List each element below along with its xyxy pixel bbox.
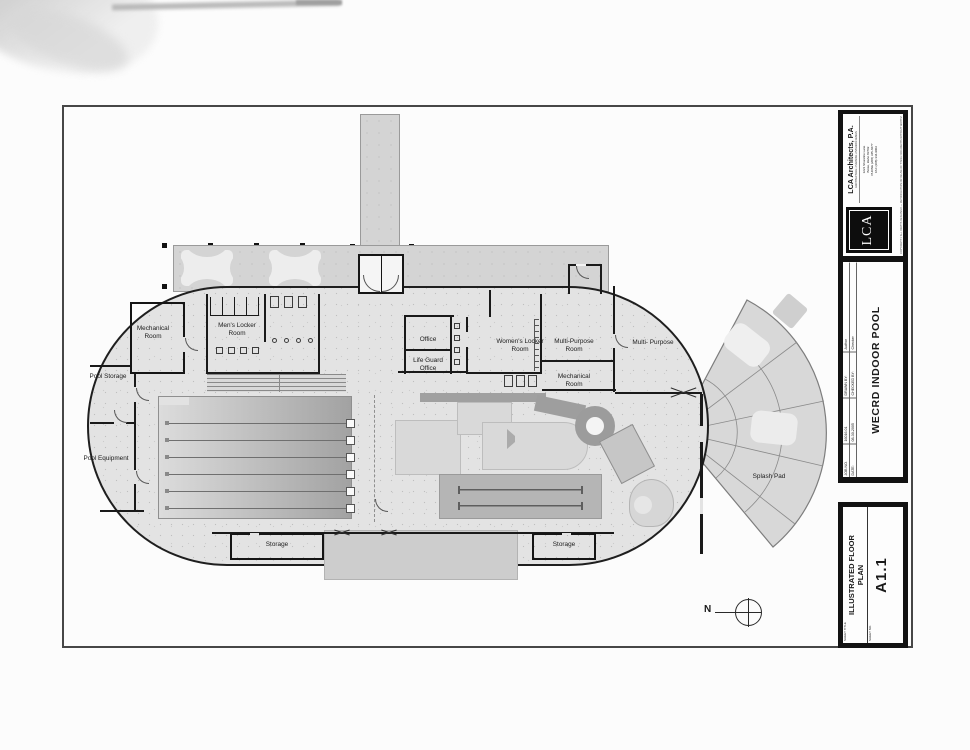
room-label-pool-storage: Pool Storage (80, 373, 136, 381)
double-door-symbol (670, 386, 697, 398)
room-label-pool-equipment: Pool Equipment (76, 455, 136, 463)
kiddie-slide (629, 479, 674, 527)
sheet-number: A1.1 (873, 507, 890, 643)
titleblock-upper: LCA LCA Architects, P.A. ARCHITECTURE • … (838, 110, 908, 483)
scan-mark-top (296, 0, 342, 5)
door-x-symbol (381, 527, 397, 537)
drawing-border: Mechanical Room Pool Storage Pool Equipm… (62, 105, 913, 648)
shade-sail-2 (269, 250, 321, 286)
room-label-mens-locker: Men's Locker Room (205, 322, 269, 337)
checked-by-value: Checker (850, 262, 856, 351)
starting-block (346, 470, 355, 479)
lca-logo: LCA (846, 207, 892, 253)
scanned-sheet: Mechanical Room Pool Storage Pool Equipm… (0, 0, 970, 750)
entry-corridor (360, 114, 400, 249)
project-card: JOB NO. 16016.01 DRAWN BY: Author DATE: … (843, 262, 903, 477)
room-label-multipurpose: Multi- Purpose (620, 339, 686, 347)
date-value: 08-30-2005 (850, 397, 856, 443)
firm-address: 1221 Shoreline Lane Boise, Idaho 83702 P… (862, 116, 878, 203)
door-x-symbol (334, 527, 350, 537)
room-label-mechanical-west: Mechanical Room (122, 325, 184, 340)
starting-block (346, 504, 355, 513)
job-info-row1: JOB NO. 16016.01 DRAWN BY: Author (843, 262, 850, 477)
scan-smudge-2 (2, 0, 136, 84)
room-label-storage-west: Storage (247, 541, 307, 549)
firm-name: LCA Architects, P.A. (846, 116, 855, 203)
starting-block (346, 436, 355, 445)
starting-block (346, 453, 355, 462)
room-label-storage-east: Storage (534, 541, 594, 549)
sheet-card: SHEET TITLE ILLUSTRATED FLOOR PLAN SHEET… (843, 507, 903, 643)
job-info-row2: DATE: 08-30-2005 CHECKED BY: Checker (850, 262, 857, 477)
firm-tagline: ARCHITECTURE • PLANNING • INTERIOR DESIG… (855, 116, 860, 203)
shade-sail-1 (181, 250, 233, 286)
firm-card: LCA LCA Architects, P.A. ARCHITECTURE • … (843, 114, 903, 256)
drawn-by-value: Author (843, 262, 849, 351)
date-label: DATE: (850, 443, 856, 477)
room-label-office: Office (405, 336, 451, 344)
sheet-title: ILLUSTRATED FLOOR PLAN (848, 507, 865, 643)
checked-by-label: CHECKED BY: (850, 351, 856, 397)
bleachers (207, 374, 346, 392)
titleblock-lower: SHEET TITLE ILLUSTRATED FLOOR PLAN SHEET… (838, 502, 908, 648)
copyright-note: COPYRIGHT © ALL RIGHTS RESERVED — REPROD… (900, 116, 903, 254)
lap-pool (158, 396, 352, 519)
south-deck (324, 530, 518, 580)
room-label-multipurpose-rm: Multi-Purpose Room (542, 338, 606, 353)
entry-vestibule (358, 254, 404, 294)
scan-streak-top (112, 0, 340, 10)
job-no-label: JOB NO. (843, 443, 849, 477)
starting-block (346, 419, 355, 428)
project-name: WECRD INDOOR POOL (870, 262, 882, 477)
north-label: N (704, 604, 711, 615)
starting-block (346, 487, 355, 496)
lca-logo-text: LCA (860, 208, 876, 252)
drawn-by-label: DRAWN BY: (843, 351, 849, 397)
room-label-splash-pad: Splash Pad (737, 473, 801, 481)
lap-lane-strip (439, 474, 602, 519)
scan-smudge-topleft (0, 0, 172, 93)
room-label-mechanical-east: Mechanical Room (542, 373, 606, 388)
room-label-lifeguard: Life Guard Office (405, 357, 451, 372)
dark-bench-strip (420, 393, 546, 402)
job-no-value: 16016.01 (843, 397, 849, 443)
